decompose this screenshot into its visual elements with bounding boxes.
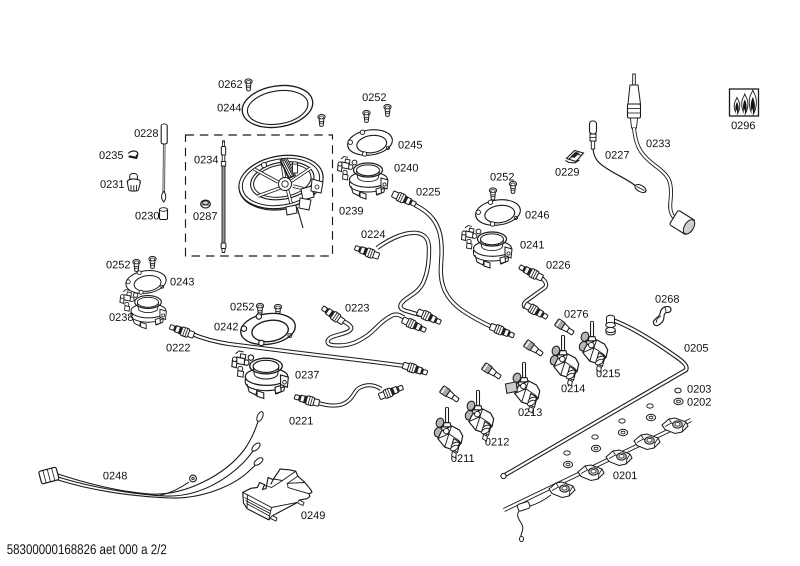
- svg-text:0249: 0249: [301, 510, 325, 522]
- svg-text:0229: 0229: [555, 167, 579, 179]
- svg-text:0226: 0226: [546, 260, 570, 272]
- svg-text:0242: 0242: [214, 321, 238, 333]
- svg-text:0223: 0223: [345, 302, 369, 314]
- svg-text:0276: 0276: [564, 309, 588, 321]
- svg-text:0252: 0252: [362, 92, 386, 104]
- svg-text:0287: 0287: [193, 211, 217, 223]
- svg-text:0230: 0230: [135, 210, 159, 222]
- svg-text:0202: 0202: [687, 397, 711, 409]
- svg-text:0233: 0233: [646, 138, 670, 150]
- svg-text:0224: 0224: [361, 229, 385, 241]
- svg-text:0268: 0268: [655, 294, 679, 306]
- svg-text:0201: 0201: [613, 470, 637, 482]
- svg-text:0252: 0252: [230, 301, 254, 313]
- svg-text:0212: 0212: [485, 437, 509, 449]
- svg-text:0238: 0238: [109, 312, 133, 324]
- svg-text:0234: 0234: [194, 154, 218, 166]
- svg-text:0244: 0244: [217, 102, 241, 114]
- svg-text:0203: 0203: [687, 384, 711, 396]
- svg-text:0205: 0205: [684, 343, 708, 355]
- svg-text:0239: 0239: [339, 205, 363, 217]
- svg-text:0235: 0235: [99, 150, 123, 162]
- svg-text:0237: 0237: [295, 369, 319, 381]
- svg-text:0227: 0227: [605, 150, 629, 162]
- svg-text:0252: 0252: [106, 259, 130, 271]
- svg-text:0246: 0246: [525, 210, 549, 222]
- svg-text:0245: 0245: [398, 139, 422, 151]
- svg-text:0231: 0231: [100, 179, 124, 191]
- svg-text:0225: 0225: [416, 187, 440, 199]
- svg-text:0240: 0240: [394, 162, 418, 174]
- svg-text:0221: 0221: [289, 415, 313, 427]
- svg-text:0243: 0243: [170, 276, 194, 288]
- svg-text:0262: 0262: [218, 79, 242, 91]
- svg-text:0296: 0296: [731, 120, 755, 132]
- svg-text:0222: 0222: [166, 342, 190, 354]
- svg-text:0248: 0248: [103, 470, 127, 482]
- svg-text:58300000168826 aet 000 a 2/2: 58300000168826 aet 000 a 2/2: [7, 541, 167, 557]
- svg-text:0228: 0228: [134, 128, 158, 140]
- svg-text:0214: 0214: [561, 383, 585, 395]
- svg-text:0241: 0241: [520, 240, 544, 252]
